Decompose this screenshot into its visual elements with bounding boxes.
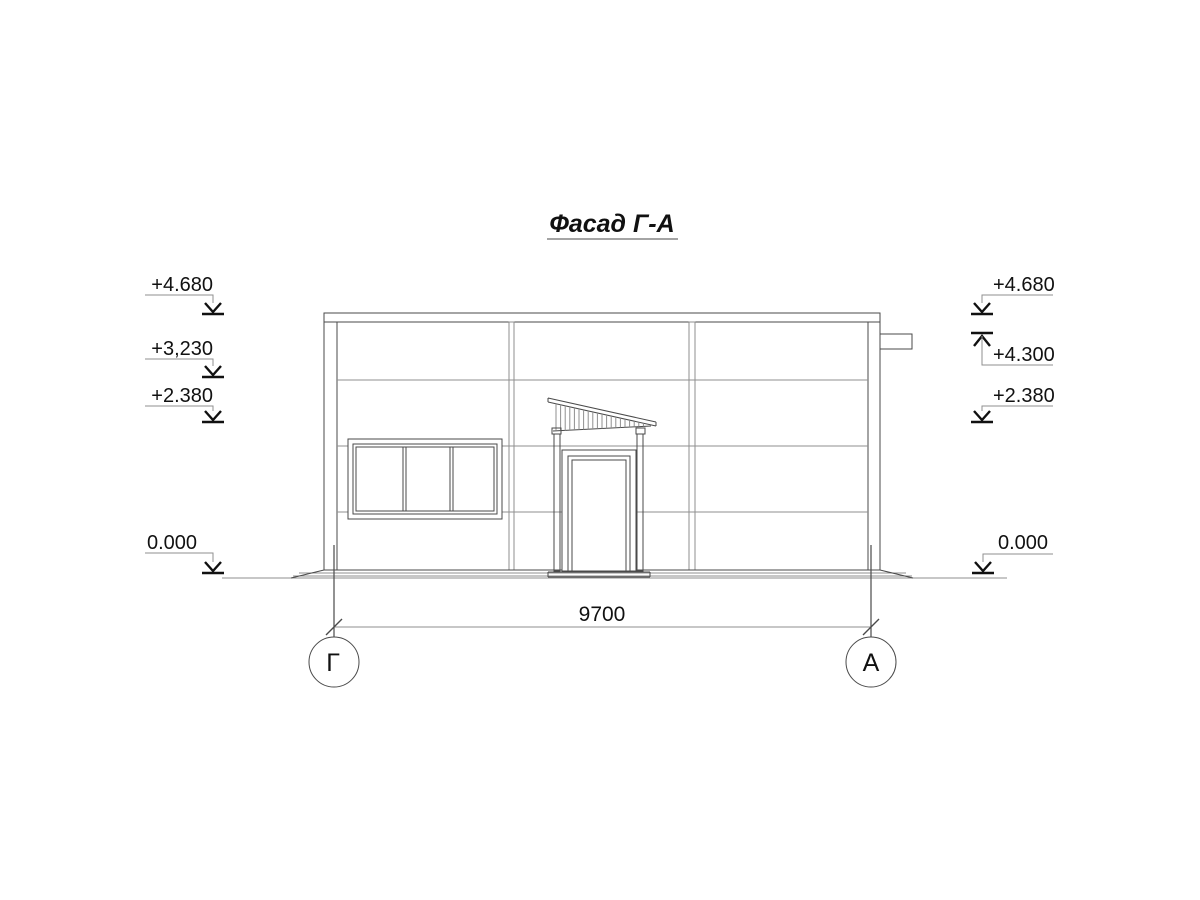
elevation-label: 0.000 (998, 532, 1048, 554)
window (348, 439, 502, 519)
elevation-leader-line (145, 359, 213, 366)
drawing-sheet: 9700 Г А +4.680 +3,230 +2.380 0.000 (0, 0, 1200, 900)
column-left (324, 322, 337, 570)
page-title: Фасад Г-А (549, 210, 674, 238)
grid-axis-label-left: Г (326, 649, 340, 677)
elevation-mark-right-2380: +2.380 (971, 385, 1055, 422)
elevation-arrow-down-icon (202, 303, 224, 314)
window-outer-frame (348, 439, 502, 519)
elevation-label: 0.000 (147, 532, 197, 554)
elevation-mark-left-2380: +2.380 (145, 385, 224, 422)
canopy (548, 398, 656, 431)
entrance (548, 398, 656, 577)
elevation-arrow-down-icon (202, 562, 224, 573)
door-outer-frame (562, 450, 636, 571)
elevation-label: +4.680 (151, 274, 213, 296)
elevation-mark-left-zero: 0.000 (145, 532, 224, 573)
elevation-label: +4.300 (993, 344, 1055, 366)
column-right (868, 322, 880, 570)
elevation-leader-line (145, 295, 213, 303)
door-post-right (637, 434, 643, 571)
elevation-marks-right: +4.680 +4.300 +2.380 0.000 (971, 274, 1055, 573)
elevation-arrow-down-icon (202, 411, 224, 422)
elevation-arrow-down-icon (971, 411, 993, 422)
plinth-flare-left (291, 570, 324, 578)
dimension-value: 9700 (579, 603, 626, 626)
elevation-leader-line (145, 553, 213, 562)
drain-spout (880, 334, 912, 349)
elevation-label: +3,230 (151, 338, 213, 360)
elevation-leader-line (982, 295, 1053, 303)
elevation-marks-left: +4.680 +3,230 +2.380 0.000 (145, 274, 224, 573)
elevation-label: +2.380 (151, 385, 213, 407)
title-block: Фасад Г-А (547, 210, 678, 239)
elevation-arrow-down-icon (202, 366, 224, 377)
canopy-post-cap-right (636, 428, 645, 434)
plinth-flare-right (880, 570, 913, 578)
parapet-band (324, 313, 880, 322)
elevation-label: +2.380 (993, 385, 1055, 407)
elevation-arrow-down-icon (971, 303, 993, 314)
elevation-leader-line (983, 554, 1053, 562)
facade-drawing-canvas: 9700 Г А +4.680 +3,230 +2.380 0.000 (0, 0, 1200, 900)
elevation-mark-right-roof: +4.680 (971, 274, 1055, 314)
elevation-mark-left-roof: +4.680 (145, 274, 224, 314)
grid-axis-label-right: А (863, 649, 880, 677)
elevation-mark-right-zero: 0.000 (972, 532, 1053, 573)
elevation-label: +4.680 (993, 274, 1055, 296)
door-post-left (554, 434, 560, 571)
elevation-mark-right-4300: +4.300 (971, 333, 1055, 366)
elevation-mark-left-3230: +3,230 (145, 338, 224, 377)
elevation-arrow-down-icon (972, 562, 994, 573)
